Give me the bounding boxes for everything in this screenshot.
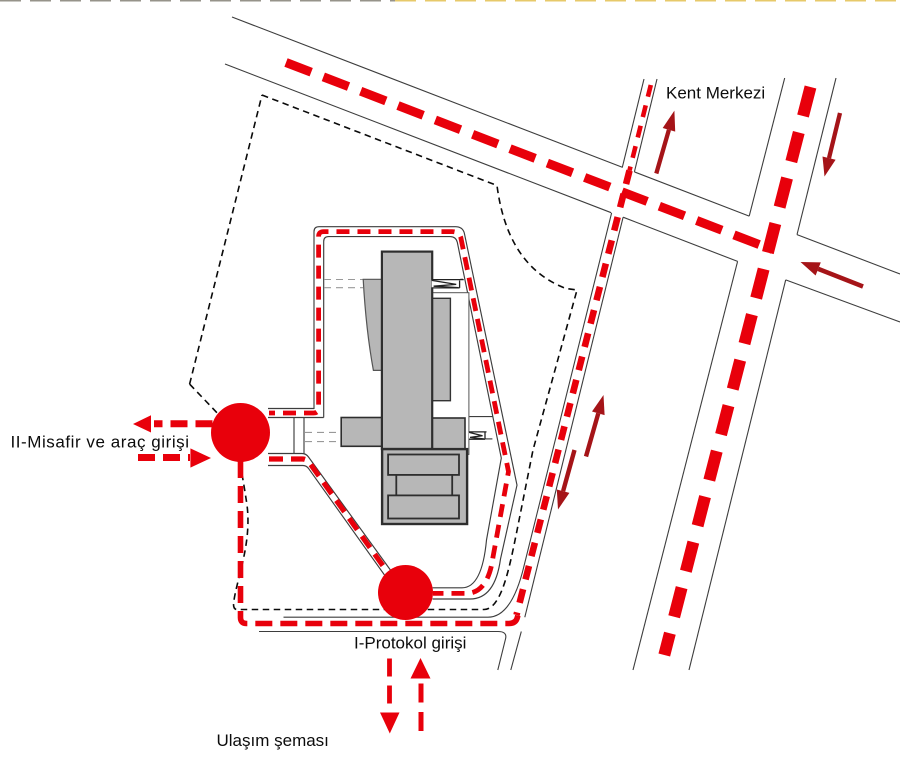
svg-text:Kent Merkezi: Kent Merkezi [666,84,765,103]
svg-text:Ulaşım şeması: Ulaşım şeması [217,731,329,750]
svg-text:II-Misafir ve araç girişi: II-Misafir ve araç girişi [11,433,190,452]
svg-text:I-Protokol girişi: I-Protokol girişi [354,634,466,653]
